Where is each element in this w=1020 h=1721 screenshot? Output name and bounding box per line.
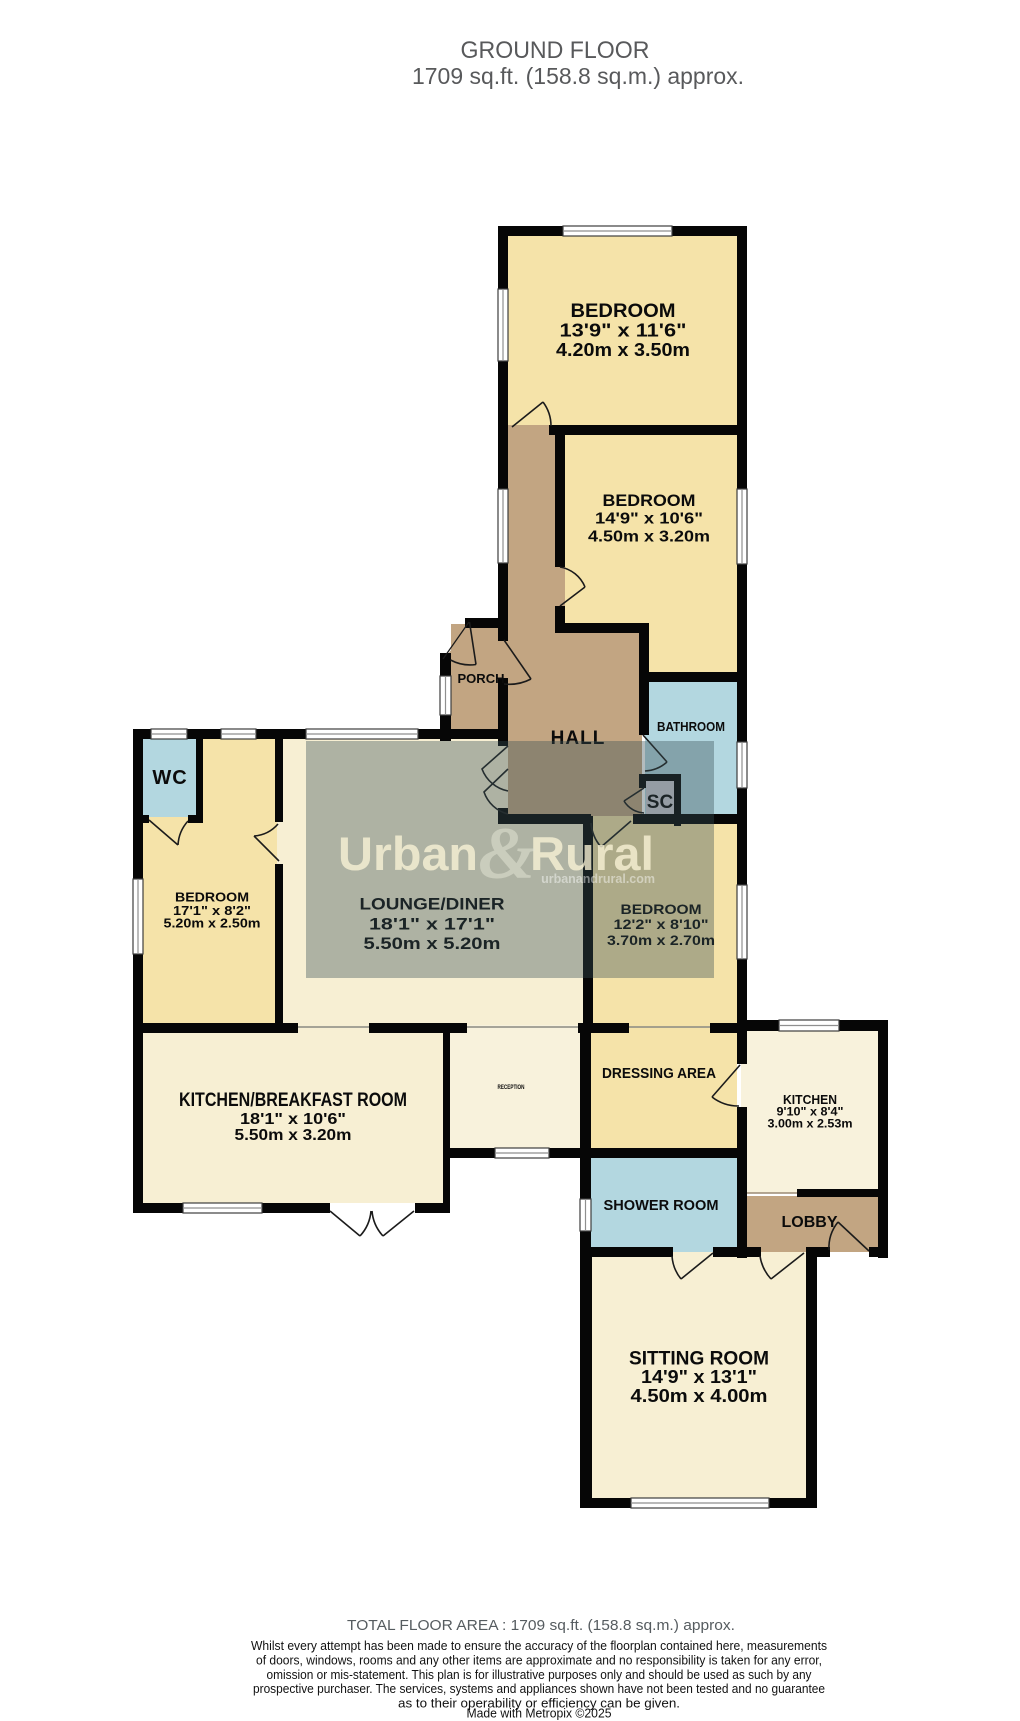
svg-text:5.20m x 2.50m: 5.20m x 2.50m [164, 917, 261, 931]
svg-text:RECEPTION: RECEPTION [498, 1085, 525, 1091]
svg-text:PORCH: PORCH [458, 671, 505, 686]
svg-text:4.20m x 3.50m: 4.20m x 3.50m [556, 340, 690, 360]
svg-text:prospective purchaser. The ser: prospective purchaser. The services, sys… [253, 1681, 825, 1696]
svg-text:Made with Metropix ©2025: Made with Metropix ©2025 [467, 1706, 612, 1721]
svg-text:TOTAL FLOOR AREA : 1709 sq.ft.: TOTAL FLOOR AREA : 1709 sq.ft. (158.8 sq… [347, 1617, 735, 1634]
svg-text:3.00m x 2.53m: 3.00m x 2.53m [768, 1117, 853, 1131]
svg-text:SHOWER ROOM: SHOWER ROOM [604, 1198, 719, 1214]
svg-text:4.50m x 4.00m: 4.50m x 4.00m [631, 1386, 768, 1406]
svg-text:of doors, windows, rooms and a: of doors, windows, rooms and any other i… [256, 1652, 822, 1667]
svg-text:BEDROOM: BEDROOM [175, 891, 249, 905]
svg-text:urbanandrural.com: urbanandrural.com [541, 872, 655, 886]
svg-text:18'1" x 10'6": 18'1" x 10'6" [240, 1111, 346, 1128]
svg-text:5.50m x 3.20m: 5.50m x 3.20m [235, 1127, 352, 1144]
svg-text:WC: WC [152, 767, 187, 789]
svg-text:Whilst every attempt has been: Whilst every attempt has been made to en… [251, 1638, 827, 1653]
svg-text:BEDROOM: BEDROOM [603, 492, 696, 510]
svg-text:DRESSING AREA: DRESSING AREA [602, 1066, 717, 1082]
svg-text:GROUND FLOOR: GROUND FLOOR [461, 37, 650, 64]
svg-text:14'9" x 10'6": 14'9" x 10'6" [595, 511, 703, 528]
svg-text:BEDROOM: BEDROOM [571, 301, 676, 322]
svg-text:&: & [478, 813, 536, 895]
svg-text:Urban: Urban [338, 827, 478, 880]
svg-text:LOBBY: LOBBY [782, 1214, 839, 1231]
svg-text:1709 sq.ft. (158.8 sq.m.) appr: 1709 sq.ft. (158.8 sq.m.) approx. [412, 63, 744, 89]
svg-text:14'9" x 13'1": 14'9" x 13'1" [641, 1367, 757, 1387]
svg-text:BATHROOM: BATHROOM [657, 720, 725, 734]
svg-text:omission or mis-statement. Thi: omission or mis-statement. This plan is … [267, 1667, 812, 1682]
svg-text:4.50m x 3.20m: 4.50m x 3.20m [588, 529, 710, 546]
svg-text:13'9" x 11'6": 13'9" x 11'6" [560, 321, 687, 341]
svg-text:KITCHEN/BREAKFAST ROOM: KITCHEN/BREAKFAST ROOM [179, 1090, 407, 1111]
